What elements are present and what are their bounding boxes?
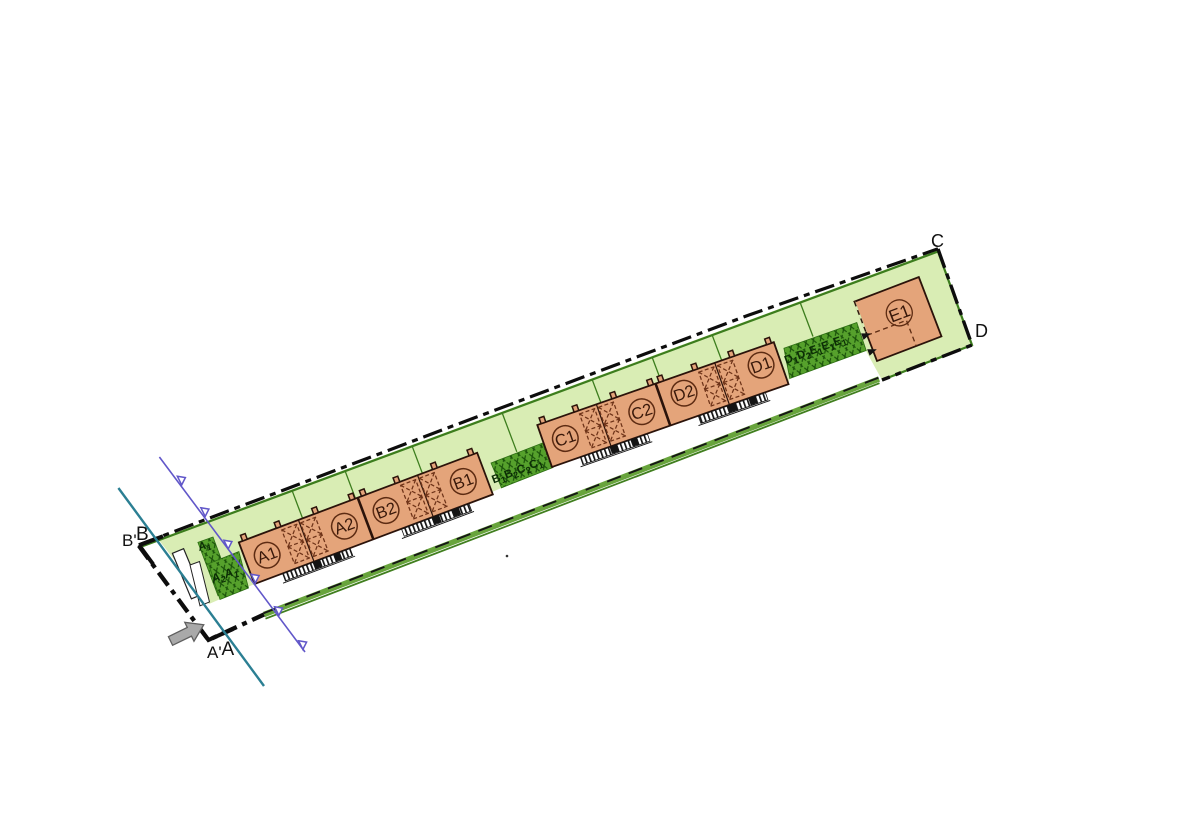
svg-text:A: A: [222, 639, 235, 660]
svg-text:C: C: [931, 231, 944, 251]
svg-text:B: B: [136, 524, 149, 545]
svg-text:D: D: [975, 321, 988, 341]
svg-text:B': B': [122, 531, 137, 550]
svg-text:A': A': [207, 643, 222, 662]
